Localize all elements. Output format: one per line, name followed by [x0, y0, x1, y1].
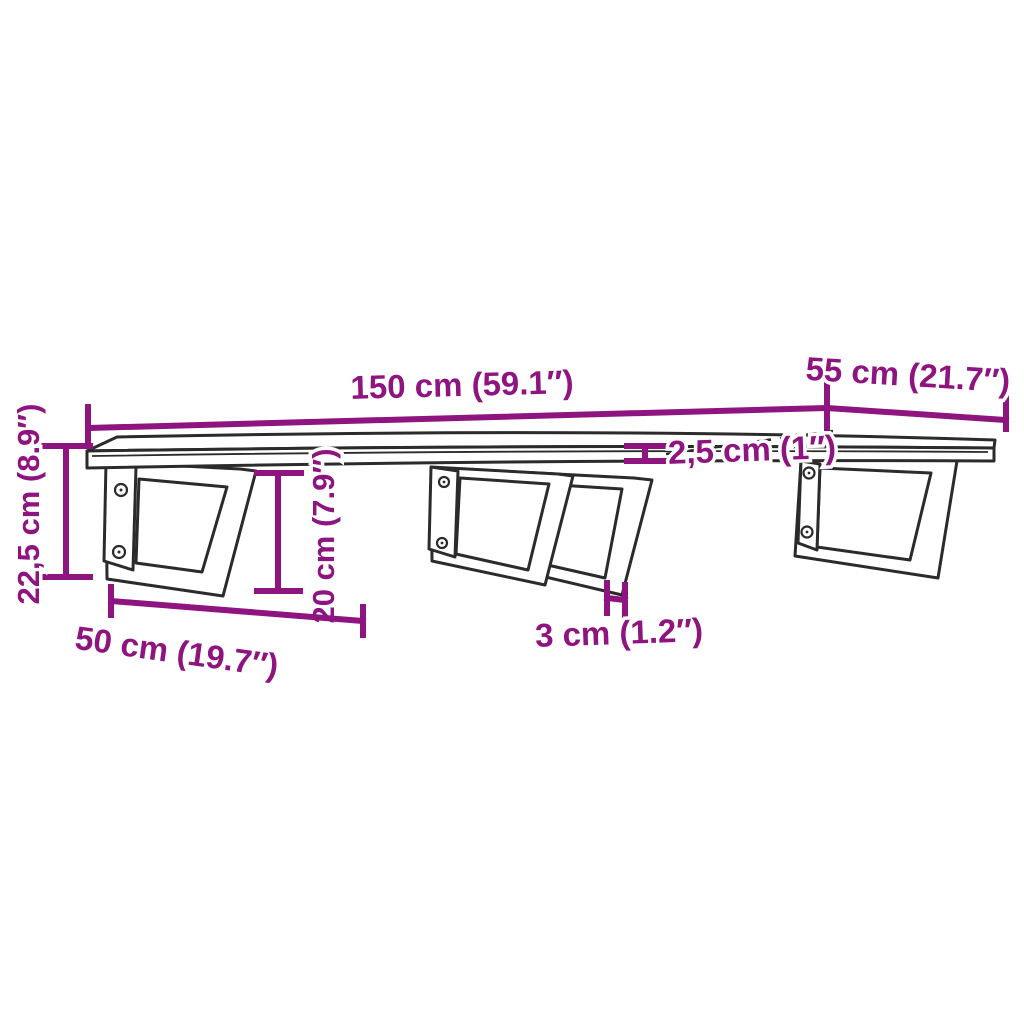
product-dimension-image: 150 cm (59.1″) 55 cm (21.7″) 22,5 cm (8.… — [0, 0, 1024, 1024]
bracket-right — [795, 458, 957, 578]
dim-board-thickness-label: 2,5 cm (1″) — [667, 428, 836, 471]
dimension-total-height — [44, 446, 90, 577]
dim-total-height-label: 22,5 cm (8.9″) — [11, 404, 46, 605]
screw-slot-icon — [806, 531, 809, 534]
dim-bracket-thickness-label: 3 cm (1.2″) — [534, 611, 703, 654]
dim-bracket-depth-label: 50 cm (19.7″) — [73, 619, 281, 684]
dim-bracket-height-label: 20 cm (7.9″) — [306, 448, 341, 623]
screw-slot-icon — [120, 489, 123, 492]
screw-slot-icon — [118, 551, 121, 554]
dimension-bracket-height — [257, 473, 301, 591]
dim-length-depth-line — [88, 408, 1006, 428]
screw-slot-icon — [441, 542, 444, 545]
dim-tick-crossbar — [607, 598, 625, 600]
shelf-diagram: 150 cm (59.1″) 55 cm (21.7″) 22,5 cm (8.… — [0, 0, 1024, 1024]
dim-board-depth-label: 55 cm (21.7″) — [805, 350, 1012, 399]
bracket-frame-opening — [817, 468, 931, 560]
dim-board-length-label: 150 cm (59.1″) — [350, 363, 574, 406]
screw-slot-icon — [808, 472, 811, 475]
screw-slot-icon — [443, 481, 446, 484]
bracket-left — [104, 462, 256, 596]
